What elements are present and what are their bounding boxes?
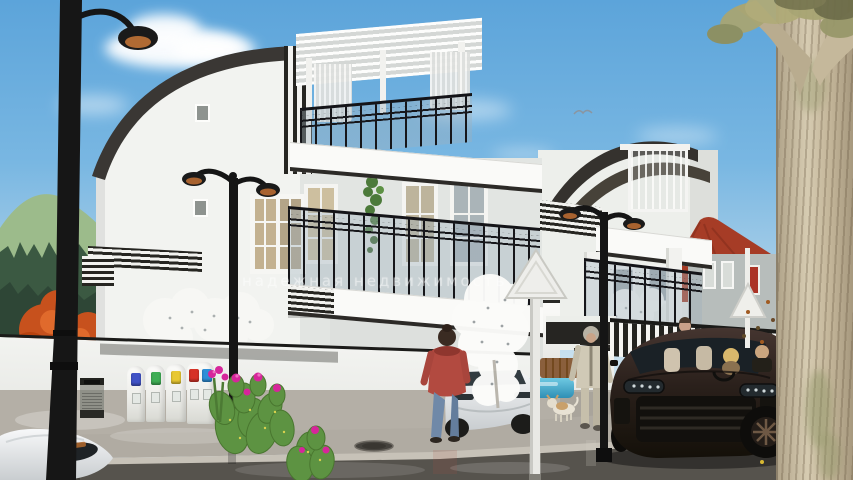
moss-patch (818, 432, 840, 480)
watermark: надежная недвижимость (242, 272, 642, 290)
bird (574, 111, 592, 115)
architectural-render-scene: надежная недвижимость (0, 0, 853, 480)
cactus-large (205, 366, 296, 458)
street-lamp-left (46, 0, 158, 480)
suv (610, 328, 796, 458)
tree-branches (700, 0, 853, 210)
dog (547, 395, 578, 422)
